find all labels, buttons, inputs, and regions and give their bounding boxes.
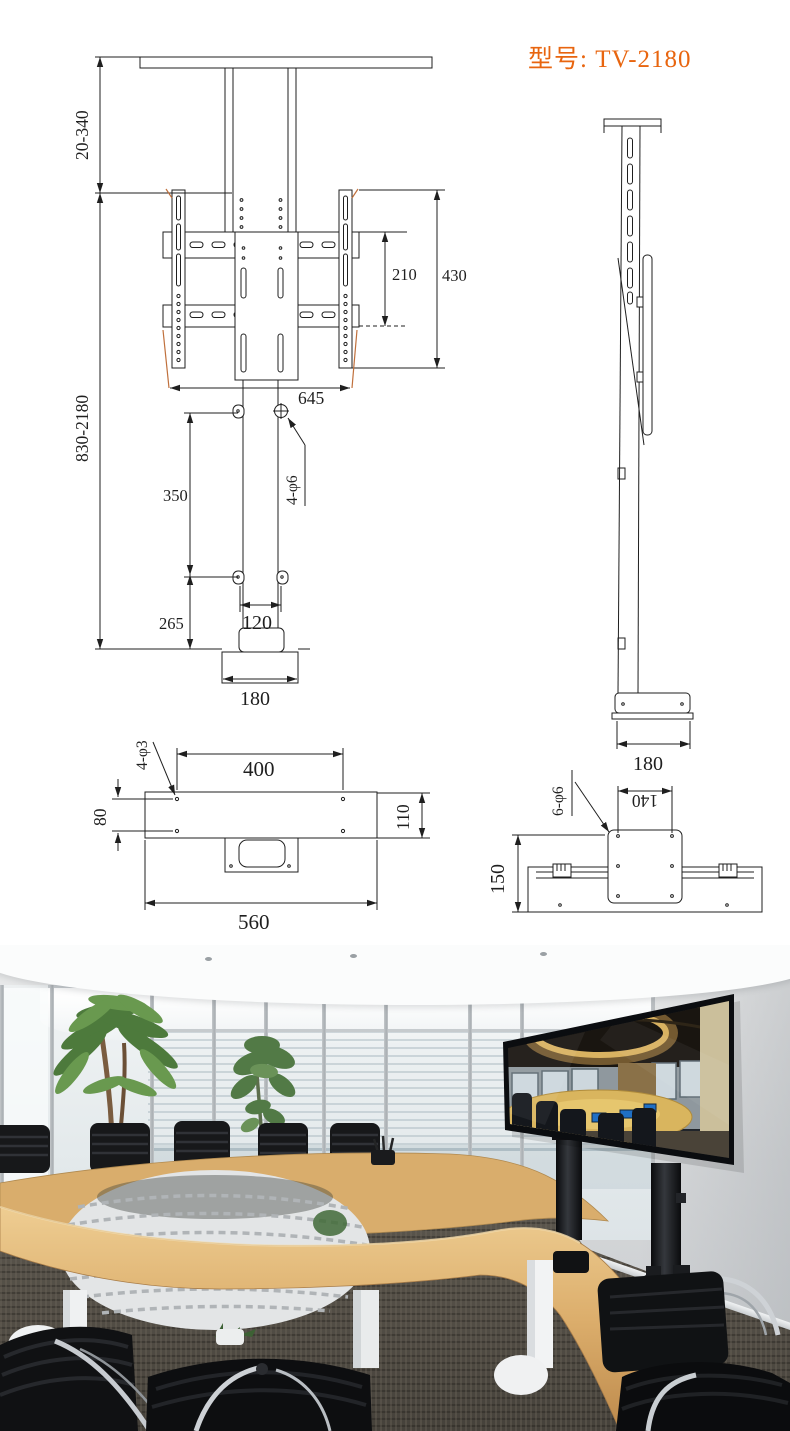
callout-front-screws: 4-φ6: [284, 475, 301, 505]
dim-lower-column: 265: [159, 614, 184, 633]
pen-holder: [371, 1136, 395, 1165]
left-rail: [172, 190, 185, 368]
chair-left: [0, 1327, 170, 1431]
dim-plate-width: 140: [632, 791, 659, 811]
chair-behind-stand: [597, 1271, 778, 1374]
dim-bracket-width: 645: [298, 388, 325, 408]
side-view: 180: [604, 119, 693, 775]
side-column-slots: [628, 138, 633, 304]
bottom-view: 140 6-φ6 150: [487, 770, 762, 912]
top-view-bar: [145, 792, 377, 838]
tv-stand-foot-left: [553, 1251, 589, 1273]
product-page: 型号: TV-2180: [0, 0, 790, 1431]
dim-vesa-vertical: 210: [392, 265, 417, 284]
callout-top-screws: 4-φ3: [134, 740, 151, 770]
chair-right: [616, 1362, 790, 1431]
dim-assembly-depth: 150: [487, 864, 509, 894]
dim-upper-column: 350: [163, 486, 188, 505]
base-front: [222, 652, 298, 683]
dim-bar-width: 560: [238, 910, 270, 934]
mount-plate-side: [643, 255, 652, 435]
center-plate: [235, 232, 298, 380]
dim-hole-row-gap: 80: [90, 808, 110, 826]
tilted-tv-profile: [618, 258, 644, 445]
dim-bar-depth: 110: [393, 804, 413, 830]
right-rail: [339, 190, 352, 368]
technical-drawing: 型号: TV-2180: [0, 0, 790, 945]
dim-base-width: 180: [240, 688, 270, 710]
page-title: 型号: TV-2180: [528, 45, 692, 73]
dim-total-height: 830-2180: [72, 395, 92, 462]
potted-plant-large: [49, 990, 182, 1137]
dim-column-width: 120: [242, 612, 272, 634]
chair-center: [146, 1359, 372, 1431]
dim-top-adjust: 20-340: [72, 110, 92, 160]
wall-tv: [503, 990, 744, 1173]
dim-hole-span: 400: [243, 757, 275, 781]
base-side: [615, 693, 690, 713]
ceiling-plate: [140, 57, 432, 68]
product-photo: [0, 945, 790, 1431]
photo-overlay: [0, 945, 790, 1431]
dim-base-depth: 180: [633, 753, 663, 775]
dim-bracket-height: 430: [442, 266, 467, 285]
callout-bottom-screws: 6-φ6: [550, 786, 567, 816]
inner-tube-holes: [240, 199, 282, 229]
top-view: 400 4-φ3 80 110 560: [90, 740, 430, 934]
front-view: 20-340 830-2180 210 430 645 350 265 120 …: [72, 57, 467, 710]
